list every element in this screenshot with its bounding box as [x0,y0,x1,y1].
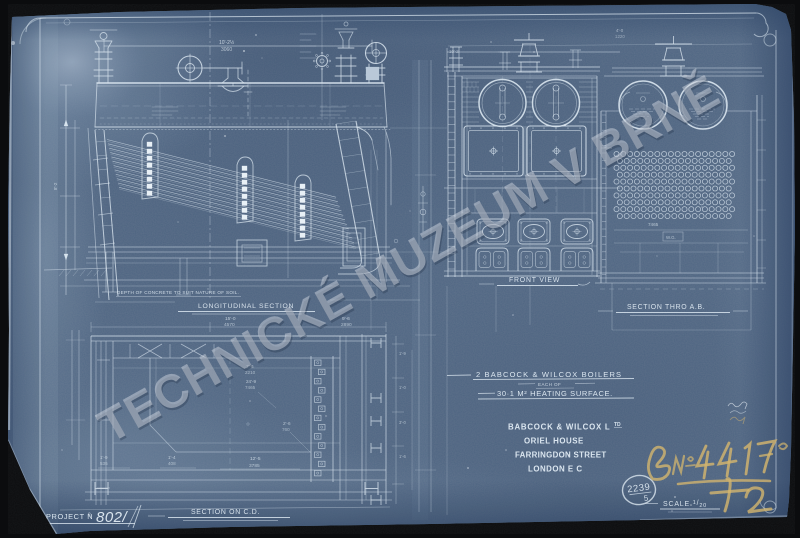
svg-text:8'-2: 8'-2 [53,182,58,190]
svg-text:4'-0: 4'-0 [616,28,624,33]
svg-text:760: 760 [282,427,290,432]
svg-text:1'-0: 1'-0 [399,385,407,390]
svg-text:3785: 3785 [249,463,260,469]
svg-text:BABCOCK & WILCOX L: BABCOCK & WILCOX L [508,423,610,432]
svg-text:PROJECT N: PROJECT N [46,512,93,521]
svg-text:10'-2½: 10'-2½ [219,39,235,46]
svg-text:12'-5: 12'-5 [250,456,261,462]
svg-text:DEPTH OF CONCRETE TO SUIT NATU: DEPTH OF CONCRETE TO SUIT NATURE OF SOIL… [117,290,239,295]
svg-text:408: 408 [168,461,176,466]
svg-text:ORIEL HOUSE: ORIEL HOUSE [524,437,584,446]
svg-text:TD: TD [614,422,621,428]
svg-text:1'-9: 1'-9 [100,455,108,460]
svg-text:2 BABCOCK & WILCOX BOILERS: 2 BABCOCK & WILCOX BOILERS [476,370,622,379]
svg-text:SECTION ON C.D.: SECTION ON C.D. [191,509,260,516]
svg-text:3060: 3060 [221,47,232,53]
svg-text:7465: 7465 [648,222,659,227]
svg-text:W.G.: W.G. [666,235,676,240]
svg-text:EACH OF: EACH OF [538,382,561,387]
svg-text:2'-6: 2'-6 [283,421,291,426]
svg-text:7465: 7465 [245,385,256,390]
svg-text:3'-0: 3'-0 [399,420,407,425]
svg-text:535: 535 [100,461,108,466]
svg-text:30·1 M² HEATING SURFACE.: 30·1 M² HEATING SURFACE. [497,389,613,398]
svg-text:10'-2: 10'-2 [449,49,459,54]
svg-text:SECTION THRO A.B.: SECTION THRO A.B. [627,304,705,311]
svg-text:1'-6: 1'-6 [399,454,407,459]
svg-text:FARRINGDON STREET: FARRINGDON STREET [515,451,606,460]
svg-text:1'-9: 1'-9 [399,351,407,356]
svg-text:LONDON E C: LONDON E C [528,465,583,474]
svg-text:1220: 1220 [615,34,625,39]
svg-text:15'-0: 15'-0 [225,316,236,322]
svg-text:1'-4: 1'-4 [168,455,176,460]
svg-text:FRONT VIEW: FRONT VIEW [509,277,560,284]
